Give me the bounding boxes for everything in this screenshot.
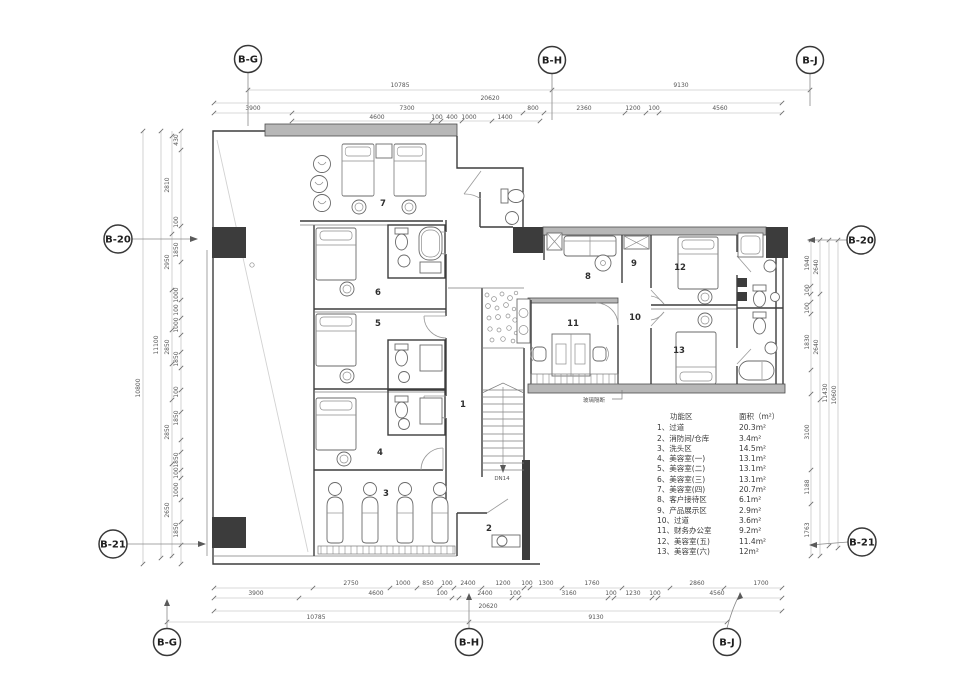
svg-text:4560: 4560 bbox=[712, 105, 727, 112]
svg-text:100: 100 bbox=[804, 302, 811, 314]
legend-header: 功能区 面积（m²） bbox=[657, 412, 781, 422]
svg-text:10800: 10800 bbox=[135, 378, 142, 397]
dim-label: 20620 bbox=[480, 95, 499, 102]
room-number-8: 8 bbox=[585, 272, 591, 282]
svg-text:11100: 11100 bbox=[153, 335, 160, 354]
legend-header-zone: 功能区 bbox=[657, 412, 693, 422]
svg-text:4560: 4560 bbox=[709, 590, 724, 597]
legend-row: 13、美容室(六)12m² bbox=[657, 547, 781, 557]
svg-text:3160: 3160 bbox=[561, 590, 576, 597]
svg-text:B-20: B-20 bbox=[848, 236, 874, 247]
legend-row: 6、美容室(三)13.1m² bbox=[657, 475, 781, 485]
svg-text:1200: 1200 bbox=[625, 105, 640, 112]
grid-bubble-left-b21: B-21 bbox=[99, 530, 127, 558]
stool bbox=[698, 290, 712, 304]
plant bbox=[314, 195, 331, 212]
svg-text:100: 100 bbox=[173, 216, 180, 228]
svg-text:1850: 1850 bbox=[173, 410, 180, 425]
room-number-4: 4 bbox=[377, 448, 383, 458]
svg-text:4600: 4600 bbox=[369, 114, 384, 121]
legend-row: 10、过道3.6m² bbox=[657, 516, 781, 526]
stool bbox=[340, 282, 354, 296]
dim-label: 9130 bbox=[673, 82, 688, 89]
room-number-2: 2 bbox=[486, 524, 492, 534]
svg-text:2640: 2640 bbox=[813, 259, 820, 274]
room13-bed bbox=[676, 332, 716, 384]
sink bbox=[506, 212, 519, 225]
svg-text:1188: 1188 bbox=[804, 479, 811, 494]
svg-text:1230: 1230 bbox=[625, 590, 640, 597]
grid-bubble-bottom-bh: B-H bbox=[456, 629, 483, 656]
svg-text:100: 100 bbox=[173, 304, 180, 316]
stair-direction-label: DN14 bbox=[494, 476, 510, 482]
toilet bbox=[753, 285, 766, 307]
room7-bed-1 bbox=[342, 144, 374, 196]
vanity bbox=[420, 262, 441, 273]
svg-text:9130: 9130 bbox=[588, 614, 603, 621]
room-number-1: 1 bbox=[460, 400, 466, 410]
sink bbox=[764, 260, 776, 272]
wash-station bbox=[362, 483, 378, 544]
svg-text:2810: 2810 bbox=[164, 177, 171, 192]
svg-text:2360: 2360 bbox=[576, 105, 591, 112]
svg-text:100: 100 bbox=[441, 580, 453, 587]
svg-text:11430: 11430 bbox=[822, 383, 829, 402]
svg-text:100: 100 bbox=[804, 284, 811, 296]
sink bbox=[399, 419, 410, 430]
room-number-9: 9 bbox=[631, 259, 637, 269]
grid-bubble-bottom-bj: B-J bbox=[714, 629, 741, 656]
svg-text:1763: 1763 bbox=[804, 522, 811, 537]
toilet bbox=[395, 396, 408, 418]
svg-text:2640: 2640 bbox=[813, 339, 820, 354]
plant bbox=[314, 156, 331, 173]
svg-text:100: 100 bbox=[649, 590, 661, 597]
room5-bed bbox=[316, 314, 356, 366]
svg-text:B-H: B-H bbox=[542, 56, 562, 67]
svg-text:400: 400 bbox=[446, 114, 458, 121]
legend-row: 12、美容室(五)11.4m² bbox=[657, 537, 781, 547]
svg-text:100: 100 bbox=[648, 105, 660, 112]
svg-text:10785: 10785 bbox=[306, 614, 325, 621]
legend-row: 3、洗头区14.5m² bbox=[657, 444, 781, 454]
svg-text:B-H: B-H bbox=[459, 638, 479, 649]
room-number-13: 13 bbox=[673, 346, 685, 356]
shower bbox=[420, 398, 442, 424]
svg-text:1850: 1850 bbox=[173, 522, 180, 537]
svg-text:100: 100 bbox=[436, 590, 448, 597]
grid-bubble-top-bg: B-G bbox=[235, 46, 262, 73]
room-number-12: 12 bbox=[674, 263, 686, 273]
pebble-garden bbox=[485, 291, 530, 343]
toilet bbox=[501, 189, 524, 203]
svg-text:B-20: B-20 bbox=[105, 235, 131, 246]
svg-text:3100: 3100 bbox=[804, 424, 811, 439]
legend-row: 2、消防间/仓库3.4m² bbox=[657, 434, 781, 444]
grid-bubble-top-bj: B-J bbox=[797, 47, 824, 74]
svg-text:2850: 2850 bbox=[164, 339, 171, 354]
wash-station bbox=[327, 483, 343, 544]
dimensions-left: 430 2810 100 1850 2950 1000 100 1000 111… bbox=[135, 129, 183, 566]
grid-bubble-bottom-bg: B-G bbox=[154, 629, 181, 656]
svg-text:1300: 1300 bbox=[538, 580, 553, 587]
dim-label: 10785 bbox=[390, 82, 409, 89]
sink bbox=[765, 342, 777, 354]
dimensions-right: 1940 2640 100 100 1830 2640 11430 10600 … bbox=[804, 238, 840, 558]
svg-text:2400: 2400 bbox=[460, 580, 475, 587]
stool bbox=[337, 452, 351, 466]
svg-text:3900: 3900 bbox=[248, 590, 263, 597]
wash-counter bbox=[318, 546, 455, 554]
legend-header-area: 面积（m²） bbox=[739, 412, 781, 422]
toilet bbox=[753, 312, 766, 334]
bathtub bbox=[419, 227, 442, 260]
svg-text:1940: 1940 bbox=[804, 255, 811, 270]
svg-text:1760: 1760 bbox=[584, 580, 599, 587]
room-number-7: 7 bbox=[380, 199, 386, 209]
legend-row: 11、财务办公室9.2m² bbox=[657, 526, 781, 536]
svg-text:B-J: B-J bbox=[802, 56, 818, 67]
stool bbox=[698, 313, 712, 327]
svg-text:1200: 1200 bbox=[495, 580, 510, 587]
svg-text:1850: 1850 bbox=[173, 452, 180, 467]
dimensions-bottom: 2750 1000 850 100 2400 1200 100 1300 176… bbox=[165, 580, 784, 624]
nightstand bbox=[376, 144, 392, 158]
planter bbox=[517, 299, 530, 343]
svg-text:B-21: B-21 bbox=[849, 538, 875, 549]
cabinet-row bbox=[531, 374, 618, 384]
glass-partition-label: 玻璃隔断 bbox=[583, 396, 606, 404]
room-number-11: 11 bbox=[567, 319, 579, 329]
floor-plan-sheet: 10785 9130 20620 3900 7300 800 2360 1200… bbox=[0, 0, 980, 692]
room-number-10: 10 bbox=[629, 313, 641, 323]
stool bbox=[402, 200, 416, 214]
room-number-5: 5 bbox=[375, 319, 381, 329]
legend-row: 5、美容室(二)13.1m² bbox=[657, 464, 781, 474]
legend-row: 8、客户接待区6.1m² bbox=[657, 495, 781, 505]
plant bbox=[311, 176, 328, 193]
sink bbox=[497, 536, 507, 546]
svg-text:1000: 1000 bbox=[395, 580, 410, 587]
room-number-6: 6 bbox=[375, 288, 381, 298]
svg-text:1850: 1850 bbox=[173, 242, 180, 257]
stool bbox=[340, 369, 354, 383]
svg-text:2750: 2750 bbox=[343, 580, 358, 587]
svg-text:1000: 1000 bbox=[173, 482, 180, 497]
room4-bed bbox=[316, 398, 356, 450]
svg-text:100: 100 bbox=[605, 590, 617, 597]
round-table bbox=[595, 255, 611, 271]
svg-text:1000: 1000 bbox=[173, 287, 180, 302]
toilet bbox=[395, 228, 408, 250]
toilet bbox=[395, 344, 408, 366]
svg-text:100: 100 bbox=[521, 580, 533, 587]
svg-text:4600: 4600 bbox=[368, 590, 383, 597]
staircase: DN14 bbox=[482, 383, 524, 482]
room7-bed-2 bbox=[394, 144, 426, 196]
svg-text:100: 100 bbox=[509, 590, 521, 597]
svg-text:B-G: B-G bbox=[157, 638, 177, 649]
sink bbox=[771, 293, 780, 302]
grid-bubble-top-bh: B-H bbox=[539, 47, 566, 74]
bathtub bbox=[739, 361, 774, 380]
svg-text:B-J: B-J bbox=[719, 638, 735, 649]
svg-text:800: 800 bbox=[527, 105, 539, 112]
svg-text:430: 430 bbox=[173, 134, 180, 146]
svg-text:2850: 2850 bbox=[164, 424, 171, 439]
svg-text:10600: 10600 bbox=[831, 385, 838, 404]
dimensions-top: 10785 9130 20620 3900 7300 800 2360 1200… bbox=[212, 82, 812, 123]
wash-station bbox=[397, 483, 413, 544]
svg-text:850: 850 bbox=[422, 580, 434, 587]
svg-text:20620: 20620 bbox=[478, 603, 497, 610]
svg-text:1700: 1700 bbox=[753, 580, 768, 587]
wash-station bbox=[432, 483, 448, 544]
legend-row: 9、产品展示区2.9m² bbox=[657, 506, 781, 516]
grid-bubble-right-b20: B-20 bbox=[847, 226, 875, 254]
room-number-3: 3 bbox=[383, 489, 389, 499]
office-chair bbox=[593, 347, 606, 361]
grid-bubble-right-b21: B-21 bbox=[848, 528, 876, 556]
sink bbox=[399, 372, 410, 383]
office-chair bbox=[533, 347, 546, 361]
svg-text:100: 100 bbox=[173, 467, 180, 479]
stool bbox=[352, 200, 366, 214]
grid-bubble-left-b20: B-20 bbox=[104, 225, 132, 253]
svg-text:B-G: B-G bbox=[238, 55, 258, 66]
svg-text:2950: 2950 bbox=[164, 254, 171, 269]
svg-text:2650: 2650 bbox=[164, 502, 171, 517]
floor-plan-canvas: 10785 9130 20620 3900 7300 800 2360 1200… bbox=[0, 0, 980, 692]
svg-text:1400: 1400 bbox=[497, 114, 512, 121]
svg-text:7300: 7300 bbox=[399, 105, 414, 112]
svg-text:2400: 2400 bbox=[477, 590, 492, 597]
room6-bed bbox=[316, 228, 356, 280]
legend-row: 1、过道20.3m² bbox=[657, 423, 781, 433]
shower bbox=[420, 345, 442, 371]
svg-text:1830: 1830 bbox=[804, 334, 811, 349]
shower bbox=[738, 233, 763, 257]
svg-text:B-21: B-21 bbox=[100, 540, 126, 551]
sink bbox=[398, 255, 410, 267]
legend-row: 4、美容室(一)13.1m² bbox=[657, 454, 781, 464]
legend-row: 7、美容室(四)20.7m² bbox=[657, 485, 781, 495]
svg-text:2860: 2860 bbox=[689, 580, 704, 587]
room-legend: 功能区 面积（m²） 1、过道20.3m² 2、消防间/仓库3.4m² 3、洗头… bbox=[657, 412, 781, 557]
